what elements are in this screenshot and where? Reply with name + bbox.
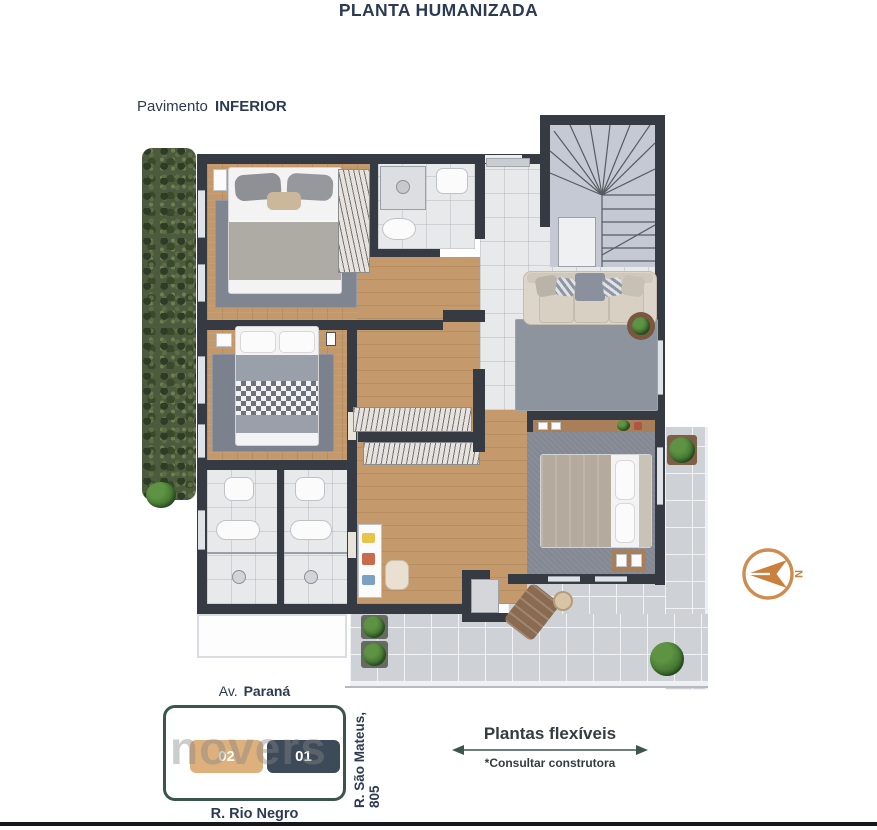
double-arrow-icon bbox=[450, 743, 650, 757]
cushion bbox=[267, 192, 301, 210]
wall-baths-top bbox=[197, 460, 357, 470]
wall-closet-divider bbox=[358, 432, 480, 442]
blanket bbox=[236, 415, 318, 433]
desk-item bbox=[362, 533, 375, 543]
wall-bottom-hall bbox=[360, 604, 462, 614]
pillow bbox=[615, 460, 635, 500]
desk-chair bbox=[385, 560, 409, 590]
window-opening bbox=[198, 356, 205, 404]
shelf-item bbox=[634, 422, 642, 430]
street-label-top: Av. Paraná bbox=[163, 683, 346, 699]
pillow bbox=[240, 331, 276, 353]
wall-baths-divider bbox=[277, 470, 284, 604]
staircase bbox=[550, 125, 655, 267]
planter-box-wall bbox=[462, 570, 490, 579]
shelf-item bbox=[538, 422, 548, 430]
wall-master-bottom bbox=[508, 574, 661, 584]
toilet bbox=[290, 520, 332, 540]
blanket bbox=[229, 220, 341, 280]
bedroom1-nightstand bbox=[213, 169, 227, 191]
north-arrow-icon: N bbox=[740, 546, 810, 604]
hedge-planting bbox=[142, 148, 196, 500]
planter-box-inner bbox=[471, 579, 499, 613]
window-opening bbox=[198, 190, 205, 238]
unit-01-number: 01 bbox=[295, 748, 312, 765]
plant bbox=[617, 420, 630, 431]
blanket bbox=[541, 455, 611, 547]
page-bottom-rule bbox=[0, 822, 877, 826]
bedroom2-nightstand bbox=[216, 333, 232, 347]
wall-bath-top-bottom bbox=[370, 249, 440, 257]
nightstand-drawer bbox=[616, 554, 627, 567]
plant bbox=[632, 317, 650, 335]
bedroom1-wardrobe bbox=[338, 169, 370, 273]
blanket bbox=[236, 355, 318, 381]
street-label-bottom: R. Rio Negro bbox=[163, 806, 346, 822]
sink bbox=[436, 168, 468, 194]
hedge-clump bbox=[146, 482, 176, 508]
pillow bbox=[555, 277, 576, 297]
entry-console bbox=[486, 158, 530, 167]
window-opening bbox=[595, 576, 627, 582]
desk-item bbox=[362, 575, 375, 585]
toilet bbox=[382, 218, 416, 240]
shower-partition bbox=[207, 552, 277, 554]
pillow bbox=[615, 503, 635, 543]
master-nightstand bbox=[612, 550, 646, 572]
hall-closet bbox=[353, 407, 472, 432]
wall-bath-top-left bbox=[370, 154, 378, 257]
headboard bbox=[639, 455, 651, 547]
flexible-plans-label: Plantas flexíveis bbox=[440, 724, 660, 744]
unit-02-number: 02 bbox=[218, 748, 235, 765]
bedroom2-tv bbox=[326, 332, 336, 346]
shower-drain bbox=[232, 570, 246, 584]
window-opening bbox=[548, 576, 580, 582]
wall-closet-right bbox=[473, 369, 485, 452]
planter-bush bbox=[363, 643, 386, 666]
desk bbox=[358, 524, 382, 598]
shower-drain bbox=[304, 570, 318, 584]
pillow bbox=[621, 274, 646, 297]
bedroom1-bed bbox=[228, 167, 342, 294]
street-top-value: Paraná bbox=[244, 683, 291, 699]
door-opening bbox=[348, 532, 356, 558]
street-top-prefix: Av. bbox=[219, 683, 238, 699]
master-bed bbox=[540, 454, 652, 548]
shelf-item bbox=[551, 422, 561, 430]
wall-bath-top-right bbox=[475, 154, 485, 239]
floor-plan bbox=[140, 112, 708, 690]
nightstand-drawer bbox=[631, 554, 642, 567]
page-title: PLANTA HUMANIZADA bbox=[0, 0, 877, 21]
wall-hall-top bbox=[443, 310, 485, 322]
wall-master-top bbox=[533, 410, 663, 420]
planter-box-wall bbox=[462, 613, 508, 622]
compass-north-letter: N bbox=[792, 570, 804, 578]
hall-closet bbox=[363, 442, 480, 465]
desk-item bbox=[362, 553, 375, 565]
wall-bedrooms-divider bbox=[197, 320, 443, 330]
shower-partition bbox=[284, 552, 347, 554]
toilet bbox=[216, 520, 260, 540]
terrace-table bbox=[553, 591, 573, 611]
white-ledge bbox=[197, 614, 347, 658]
window-opening bbox=[198, 510, 205, 550]
wall-stair-top bbox=[540, 115, 665, 125]
shower-drain bbox=[396, 180, 410, 194]
map-unit-01: 01 bbox=[267, 740, 340, 773]
map-unit-02: 02 bbox=[190, 740, 263, 773]
planter-bush bbox=[650, 642, 684, 676]
planter-bush bbox=[363, 616, 385, 638]
flexible-plans-note: *Consultar construtora bbox=[440, 756, 660, 770]
planter-bush bbox=[669, 437, 695, 463]
wall-stair-left bbox=[540, 115, 550, 227]
window-opening bbox=[198, 424, 205, 458]
flyer-page: PLANTA HUMANIZADA Pavimento INFERIOR bbox=[0, 0, 877, 830]
terrace-edge bbox=[345, 686, 708, 688]
wall-bottom-left bbox=[197, 604, 360, 614]
hallway-floor bbox=[357, 257, 480, 410]
window-opening bbox=[198, 264, 205, 302]
sink bbox=[224, 477, 254, 501]
throw-blanket bbox=[575, 273, 605, 301]
pillow bbox=[279, 331, 315, 353]
street-label-right: R. São Mateus, 805 bbox=[352, 693, 382, 808]
blanket-checker bbox=[236, 381, 318, 415]
pillow bbox=[602, 277, 623, 297]
stair-void bbox=[558, 217, 596, 267]
window-opening bbox=[657, 447, 663, 505]
sink bbox=[295, 477, 325, 501]
bedroom2-bed bbox=[235, 326, 319, 446]
